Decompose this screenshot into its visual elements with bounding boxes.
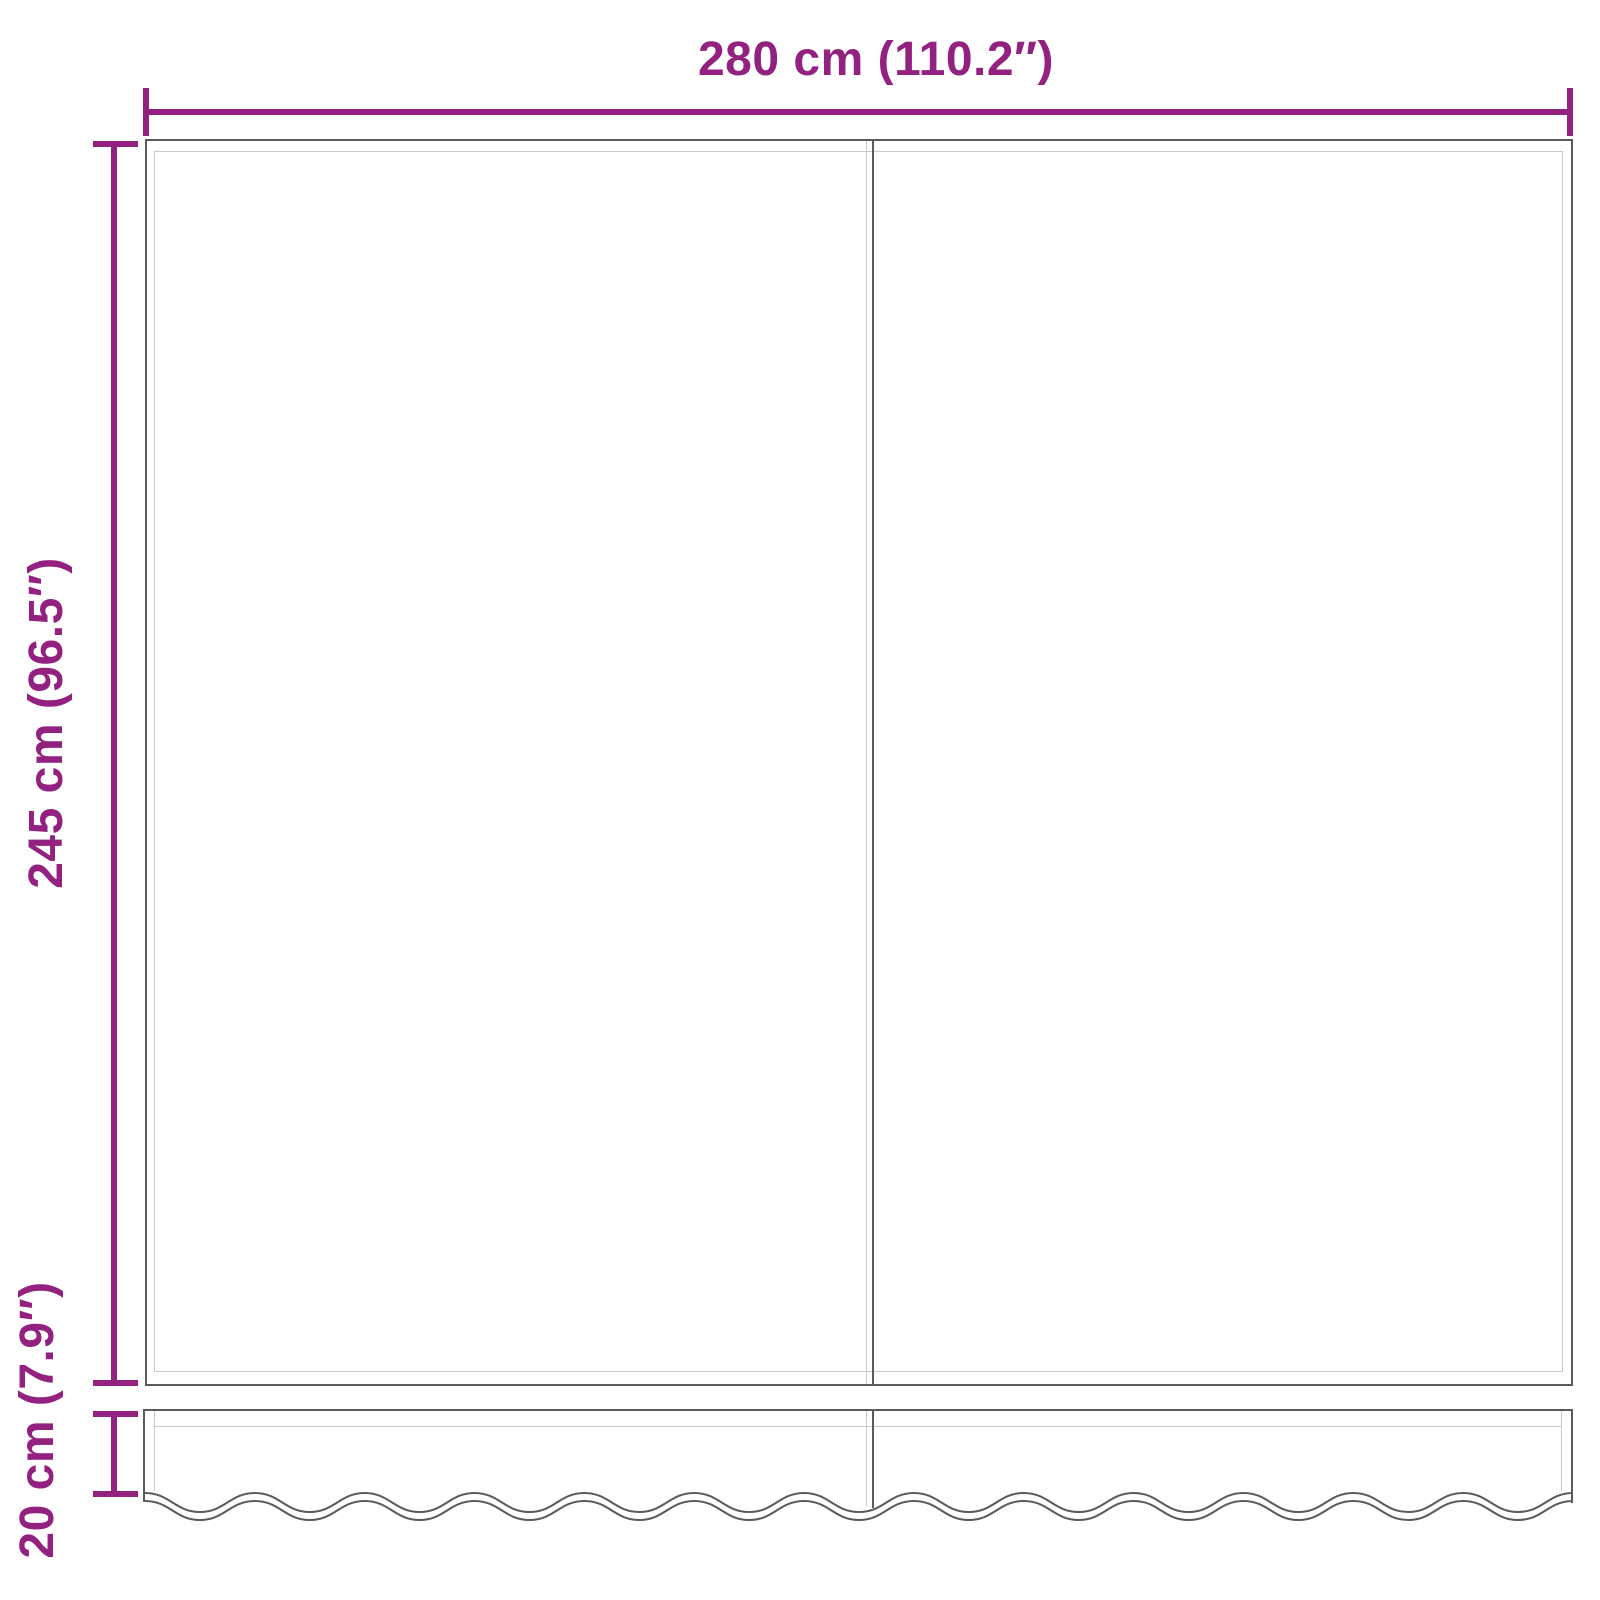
height-dimension-line	[111, 144, 117, 1384]
valance-dimension-label: 20 cm (7.9″)	[10, 1220, 66, 1600]
valance-inner-seam-top	[154, 1426, 1562, 1427]
valance-left-edge	[143, 1409, 145, 1502]
width-dimension-right-tick	[1567, 88, 1573, 136]
panel-divider-seam	[872, 141, 874, 1384]
valance-dimension-bottom-tick	[93, 1491, 138, 1497]
valance-inner-seam-left	[154, 1411, 155, 1491]
height-dimension-bottom-tick	[93, 1380, 138, 1386]
panel-divider-seam-light	[866, 141, 867, 1384]
awning-fabric-dimension-diagram: 280 cm (110.2″) 245 cm (96.5″) 20 cm (7.…	[0, 0, 1600, 1600]
valance-right-edge	[1571, 1409, 1573, 1503]
valance-divider-seam	[872, 1411, 874, 1508]
valance-dimension-top-tick	[93, 1411, 138, 1417]
valance-divider-seam-light	[866, 1411, 867, 1506]
valance-dimension-line	[111, 1414, 117, 1494]
valance-inner-seam-right	[1561, 1411, 1562, 1491]
width-dimension-label: 280 cm (110.2″)	[576, 32, 1176, 88]
scallop-line-lower	[145, 1501, 1573, 1520]
width-dimension-line	[146, 109, 1570, 115]
height-dimension-label: 245 cm (96.5″)	[19, 423, 75, 1023]
height-dimension-top-tick	[93, 141, 138, 147]
valance-top-edge	[143, 1409, 1573, 1411]
scallop-line-upper	[145, 1493, 1573, 1512]
width-dimension-left-tick	[143, 88, 149, 136]
fabric-panel-inner-seam	[154, 151, 1563, 1372]
